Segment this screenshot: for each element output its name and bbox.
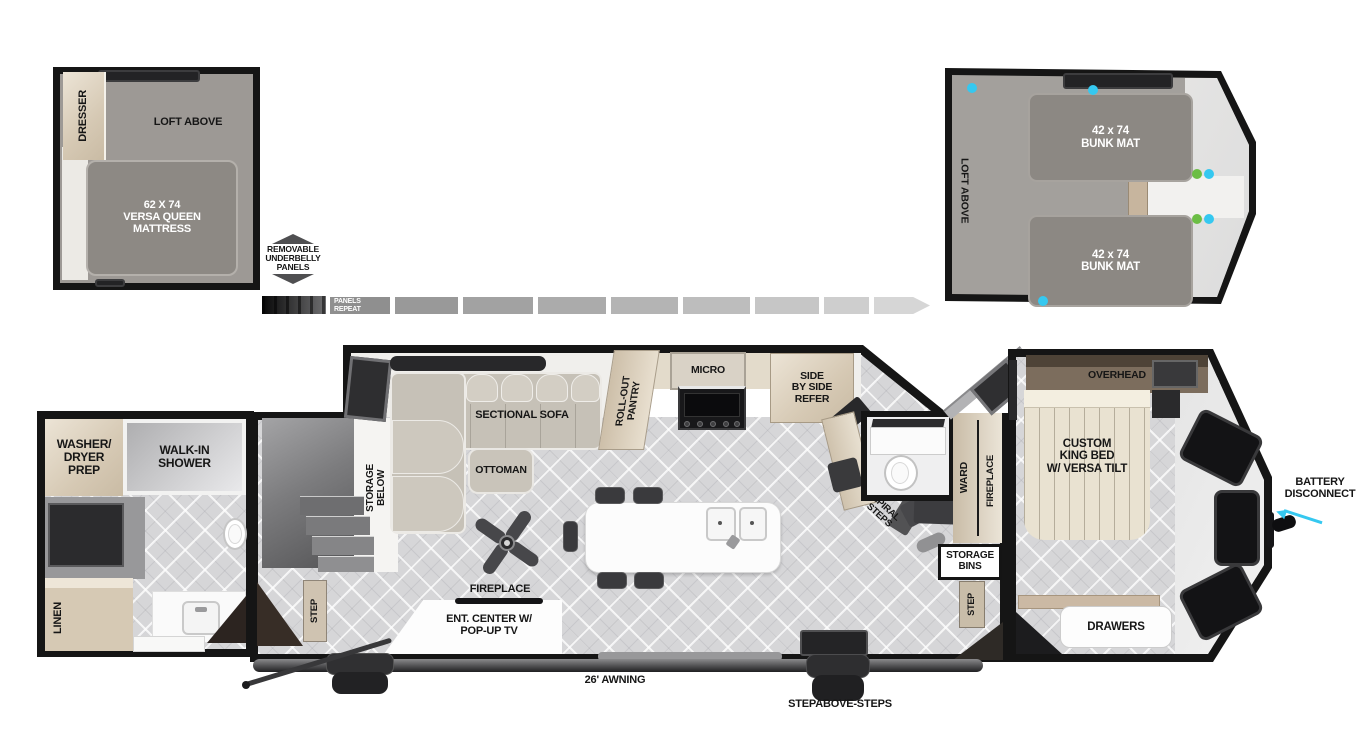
step-left-label: STEP [310, 599, 320, 623]
underbelly-panel-segment [395, 297, 458, 314]
toilet-seat-icon [228, 524, 242, 544]
dresser: DRESSER [63, 72, 106, 160]
storage-bins: STORAGE BINS [938, 544, 1002, 580]
king-bed-label: CUSTOM KING BED W/ VERSA TILT [1028, 438, 1146, 475]
range-knob [697, 421, 703, 427]
overhead-tv-icon [1152, 360, 1198, 388]
mattress-label: 62 X 74 VERSA QUEEN MATTRESS [123, 200, 200, 236]
fireplace-label: FIREPLACE [452, 584, 548, 596]
drawers: DRAWERS [1060, 606, 1172, 648]
range-knob [734, 421, 740, 427]
underbelly-panel-segment: PANELS REPEAT [330, 297, 390, 314]
bunk-mat-bottom: 42 x 74 BUNK MAT [1028, 215, 1193, 307]
walk-in-shower: WALK-IN SHOWER [123, 419, 246, 495]
rear-loft-window-icon [1063, 73, 1173, 89]
half-bath [861, 411, 955, 501]
speaker-dot-icon [1192, 214, 1202, 224]
bunk-walkway [1148, 176, 1244, 218]
light-dot-icon [1204, 214, 1214, 224]
sofa-chaise-cushion [392, 476, 464, 532]
step-right-label: STEP [967, 593, 977, 616]
micro-label: MICRO [691, 365, 725, 376]
fireplace-icon [455, 598, 543, 604]
washer-dryer-prep: WASHER/ DRYER PREP [45, 419, 123, 496]
hitch-post-icon [1267, 512, 1274, 548]
underbelly-callout-label: REMOVABLE UNDERBELLY PANELS [258, 245, 328, 273]
living-tv-icon [344, 356, 392, 422]
dining-chair [633, 487, 663, 504]
bunk-ladder [1128, 178, 1148, 216]
stepabove-steps-label: STEPABOVE-STEPS [775, 699, 905, 711]
entry-steps-left-lower [332, 672, 388, 694]
washer-dryer-label: WASHER/ DRYER PREP [57, 438, 112, 477]
light-dot-icon [1038, 296, 1048, 306]
panels-repeat-label: PANELS REPEAT [334, 298, 390, 313]
underbelly-panel-segment [262, 296, 326, 314]
grab-handle-end [242, 681, 250, 689]
light-dot-icon [967, 83, 977, 93]
nightstand [1152, 390, 1180, 418]
light-dot-icon [1088, 85, 1098, 95]
drawers-label: DRAWERS [1087, 621, 1144, 633]
front-loft-rug [62, 147, 88, 280]
sofa-cushion [501, 374, 533, 402]
half-bath-vanity [870, 427, 946, 455]
microwave: MICRO [670, 352, 746, 390]
rear-loft-above-label-wrap: LOFT ABOVE [953, 146, 975, 236]
sink-drain-icon [718, 521, 722, 525]
ward-label-wrap: WARD [954, 436, 976, 520]
stair-tread [306, 516, 370, 535]
sectional-sofa-label: SECTIONAL SOFA [458, 410, 586, 422]
bunk-mat-top-label: 42 x 74 BUNK MAT [1081, 125, 1140, 150]
range-knob [684, 421, 690, 427]
versa-queen-mattress: 62 X 74 VERSA QUEEN MATTRESS [86, 160, 238, 276]
underbelly-panel-segment [538, 297, 606, 314]
range-knob [723, 421, 729, 427]
front-loft-rear-window-icon [95, 279, 125, 287]
sofa-cushion [466, 374, 498, 402]
range-icon [678, 386, 746, 430]
range-glass [684, 393, 740, 417]
sink-drain-icon [750, 521, 754, 525]
front-loft-room: DRESSER LOFT ABOVE 62 X 74 VERSA QUEEN M… [53, 67, 260, 290]
speaker-dot-icon [1192, 169, 1202, 179]
entry-mat [800, 630, 868, 656]
bedroom-side-window-icon [1009, 360, 1017, 420]
sofa-cushion [571, 374, 600, 402]
shower-label: WALK-IN SHOWER [158, 444, 211, 470]
bath-section: WASHER/ DRYER PREP WALK-IN SHOWER LINEN [37, 411, 254, 657]
sofa-cushion [536, 374, 568, 402]
sofa-chaise-cushion [392, 420, 464, 474]
underbelly-panel-segment [611, 297, 678, 314]
battery-disconnect-label: BATTERY DISCONNECT [1276, 477, 1364, 501]
entry-step-right: STEP [959, 581, 985, 628]
dining-chair [563, 521, 578, 552]
refer-label: SIDE BY SIDE REFER [792, 371, 832, 405]
storage-below-label: STORAGE BELOW [366, 464, 388, 512]
storage-bins-label: STORAGE BINS [946, 551, 994, 573]
awning-label: 26' AWNING [560, 675, 670, 687]
down-arrow-icon [272, 274, 314, 284]
up-arrow-icon [272, 234, 314, 244]
rv-floorplan: DRESSER LOFT ABOVE 62 X 74 VERSA QUEEN M… [0, 0, 1366, 750]
ottoman: OTTOMAN [468, 448, 534, 494]
fan-hub-dot [504, 540, 510, 546]
range-knob [710, 421, 716, 427]
dining-chair [595, 487, 625, 504]
ceiling-fan-icon [471, 507, 543, 579]
ent-center-label: ENT. CENTER W/ POP-UP TV [424, 614, 554, 638]
light-dot-icon [1204, 169, 1214, 179]
bunk-mat-bottom-label: 42 x 74 BUNK MAT [1081, 249, 1140, 274]
toilet-seat-icon [891, 462, 909, 484]
fireplace-vertical-label: FIREPLACE [986, 455, 996, 507]
stair-tread [312, 536, 374, 555]
dining-chair [634, 572, 664, 589]
faucet-icon [195, 607, 207, 612]
underbelly-panel-segment [755, 297, 819, 314]
bed-pillow-band [1024, 390, 1150, 408]
front-loft-window-icon [98, 70, 200, 82]
rear-loft-above-label: LOFT ABOVE [958, 158, 969, 223]
nose-window-icon [1214, 490, 1260, 566]
pantry-label: ROLL-OUT PANTRY [615, 376, 645, 426]
stair-tread [318, 556, 374, 572]
underbelly-panel-segment [463, 297, 533, 314]
rear-loft-room: 42 x 74 BUNK MAT 42 x 74 BUNK MAT LOFT A… [945, 64, 1258, 309]
ottoman-label: OTTOMAN [475, 465, 527, 476]
sofa-window-icon [390, 356, 546, 371]
bath-window-icon [48, 503, 124, 567]
ward-label: WARD [959, 462, 970, 493]
dining-chair [597, 572, 627, 589]
bunk-mat-top: 42 x 74 BUNK MAT [1028, 93, 1193, 182]
underbelly-panel-arrow [874, 297, 930, 314]
stair-tread [300, 496, 364, 515]
fireplace-vertical-label-wrap: FIREPLACE [981, 426, 1001, 536]
underbelly-callout: REMOVABLE UNDERBELLY PANELS [258, 234, 328, 298]
ward-divider [977, 420, 979, 536]
dresser-label: DRESSER [78, 90, 90, 142]
linen-label-wrap: LINEN [45, 589, 73, 647]
front-loft-above-label: LOFT ABOVE [148, 117, 228, 129]
underbelly-panel-segment [824, 297, 869, 314]
linen-label: LINEN [53, 602, 65, 634]
underbelly-panel-segment [683, 297, 750, 314]
bath-step [133, 636, 205, 652]
entry-step-left: STEP [303, 580, 327, 642]
